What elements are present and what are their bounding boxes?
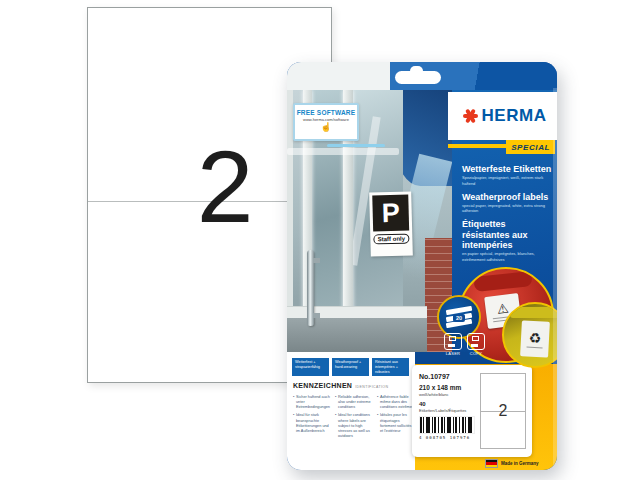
bullet: Ideal für stark beanspruchte Etikettieru… bbox=[293, 413, 330, 434]
info-panel-background: No.10797 210 x 148 mm weiß/white/blanc 4… bbox=[415, 364, 557, 470]
feature-banner-fr: Résistant aux intempéries + robustes bbox=[372, 358, 409, 376]
bullet: Sicher haftend auch unter Extrembedingun… bbox=[293, 395, 330, 410]
printer-compatibility: LASER COPY bbox=[444, 333, 485, 356]
label-count-unit: Etiketten/Labels/Étiquettes bbox=[419, 408, 479, 413]
identification-subheading: IDENTIFICATION bbox=[355, 385, 388, 389]
product-info-text: No.10797 210 x 148 mm weiß/white/blanc 4… bbox=[419, 373, 479, 440]
labels-per-sheet-number: 2 bbox=[180, 136, 270, 238]
door-handle bbox=[307, 250, 314, 326]
bin-lid bbox=[510, 307, 557, 318]
ean-barcode: 4 008705 107976 bbox=[419, 416, 475, 440]
special-stripe-line bbox=[448, 144, 506, 148]
diagram-count: 2 bbox=[481, 374, 525, 448]
special-edition-label: SPECIAL bbox=[506, 140, 555, 154]
feature-banner-de: Wetterfest + strapazierfähig bbox=[292, 358, 329, 376]
blister-ridge bbox=[287, 148, 399, 155]
identification-columns: Sicher haftend auch unter Extrembedingun… bbox=[293, 395, 414, 442]
made-in-germany: Made in Germany bbox=[485, 459, 539, 468]
copier-icon: COPY bbox=[467, 333, 485, 356]
application-photo: FREE SOFTWARE www.herma.com/software ☝ P… bbox=[287, 90, 452, 352]
article-number: No.10797 bbox=[419, 373, 479, 380]
herma-logo: HERMA bbox=[448, 92, 557, 140]
special-stripe: SPECIAL bbox=[448, 140, 557, 155]
heading-text: KENNZEICHNEN bbox=[293, 382, 352, 389]
barcode-digits: 4 008705 107976 bbox=[419, 435, 475, 440]
product-subtitle-fr: en papier spécial, imprégnées, blanches,… bbox=[462, 251, 554, 261]
printer-label: LASER bbox=[444, 351, 462, 356]
copier-glyph bbox=[467, 333, 485, 350]
bullet: Reliable adhesion, also under extreme co… bbox=[335, 395, 372, 410]
bullet: Idéales pour les étiquetages fortement s… bbox=[377, 413, 414, 434]
package-bottom: Wetterfest + strapazierfähig Weatherproo… bbox=[287, 352, 557, 470]
brand-name: HERMA bbox=[482, 106, 547, 126]
recycling-label: ♻ bbox=[520, 320, 550, 357]
warning-triangle-icon: ⚠ bbox=[496, 301, 509, 315]
label-text-line bbox=[527, 346, 543, 348]
herma-asterisk-icon bbox=[463, 109, 478, 124]
title-block-de: Wetterfeste Etiketten Spezialpapier, imp… bbox=[462, 164, 554, 186]
identification-column-en: Reliable adhesion, also under extreme co… bbox=[335, 395, 372, 442]
label-layout-diagram: 2 bbox=[480, 373, 526, 449]
made-in-text: Made in Germany bbox=[501, 461, 539, 466]
product-title-fr: Étiquettes résistantes aux intempéries bbox=[462, 219, 554, 250]
feature-banners: Wetterfest + strapazierfähig Weatherproo… bbox=[292, 358, 409, 376]
euro-slot-hang-hole bbox=[395, 71, 441, 84]
product-package: FREE SOFTWARE www.herma.com/software ☝ P… bbox=[287, 62, 557, 470]
free-software-badge: FREE SOFTWARE www.herma.com/software ☝ bbox=[293, 103, 359, 141]
door-sign-label: P Staff only bbox=[369, 191, 413, 256]
hand-cursor-icon: ☝ bbox=[295, 123, 357, 132]
product-subtitle-en: special paper, impregnated, white, extra… bbox=[462, 203, 554, 213]
product-title-en: Weatherproof labels bbox=[462, 192, 554, 202]
identification-column-fr: Adhérence fiable même dans des condition… bbox=[377, 395, 414, 442]
identification-column-de: Sicher haftend auch unter Extrembedingun… bbox=[293, 395, 330, 442]
feature-banner-en: Weatherproof + hard-wearing bbox=[332, 358, 369, 376]
laser-printer-icon: LASER bbox=[444, 333, 462, 356]
staff-only-text: Staff only bbox=[373, 234, 409, 245]
package-top-band-left bbox=[287, 62, 399, 92]
product-title-de: Wetterfeste Etiketten bbox=[462, 164, 554, 174]
title-block-fr: Étiquettes résistantes aux intempéries e… bbox=[462, 219, 554, 261]
printer-label: COPY bbox=[467, 351, 485, 356]
product-shot: 2 FREE SOFTWARE www.herma.com/softwa bbox=[0, 0, 640, 480]
package-top-band-right bbox=[390, 62, 557, 92]
barcode-bars bbox=[419, 416, 475, 434]
printer-glyph bbox=[444, 333, 462, 350]
blister-ridge bbox=[327, 144, 385, 147]
package-edge-highlight bbox=[553, 88, 557, 470]
product-subtitle-de: Spezialpapier, imprägniert, weiß, extrem… bbox=[462, 175, 554, 185]
free-software-title: FREE SOFTWARE bbox=[295, 109, 357, 116]
identification-heading: KENNZEICHNENIDENTIFICATION bbox=[293, 382, 388, 389]
bullet: Adhérence fiable même dans des condition… bbox=[377, 395, 414, 410]
sheet-count-number: 20 bbox=[453, 314, 465, 322]
color-variants: weiß/white/blanc bbox=[419, 392, 479, 397]
label-size: 210 x 148 mm bbox=[419, 384, 479, 391]
identification-panel: Wetterfest + strapazierfähig Weatherproo… bbox=[287, 352, 415, 470]
title-block-en: Weatherproof labels special paper, impre… bbox=[462, 192, 554, 214]
bullet: Ideal for conditions where labels are su… bbox=[335, 413, 372, 439]
label-count: 40 bbox=[419, 401, 479, 407]
canister-top bbox=[473, 271, 532, 292]
product-info-card: No.10797 210 x 148 mm weiß/white/blanc 4… bbox=[412, 365, 532, 457]
german-flag-icon bbox=[485, 459, 498, 468]
product-title-blocks: Wetterfeste Etiketten Spezialpapier, imp… bbox=[462, 164, 554, 262]
parking-letter: P bbox=[372, 195, 409, 232]
recycling-icon: ♻ bbox=[528, 330, 541, 345]
